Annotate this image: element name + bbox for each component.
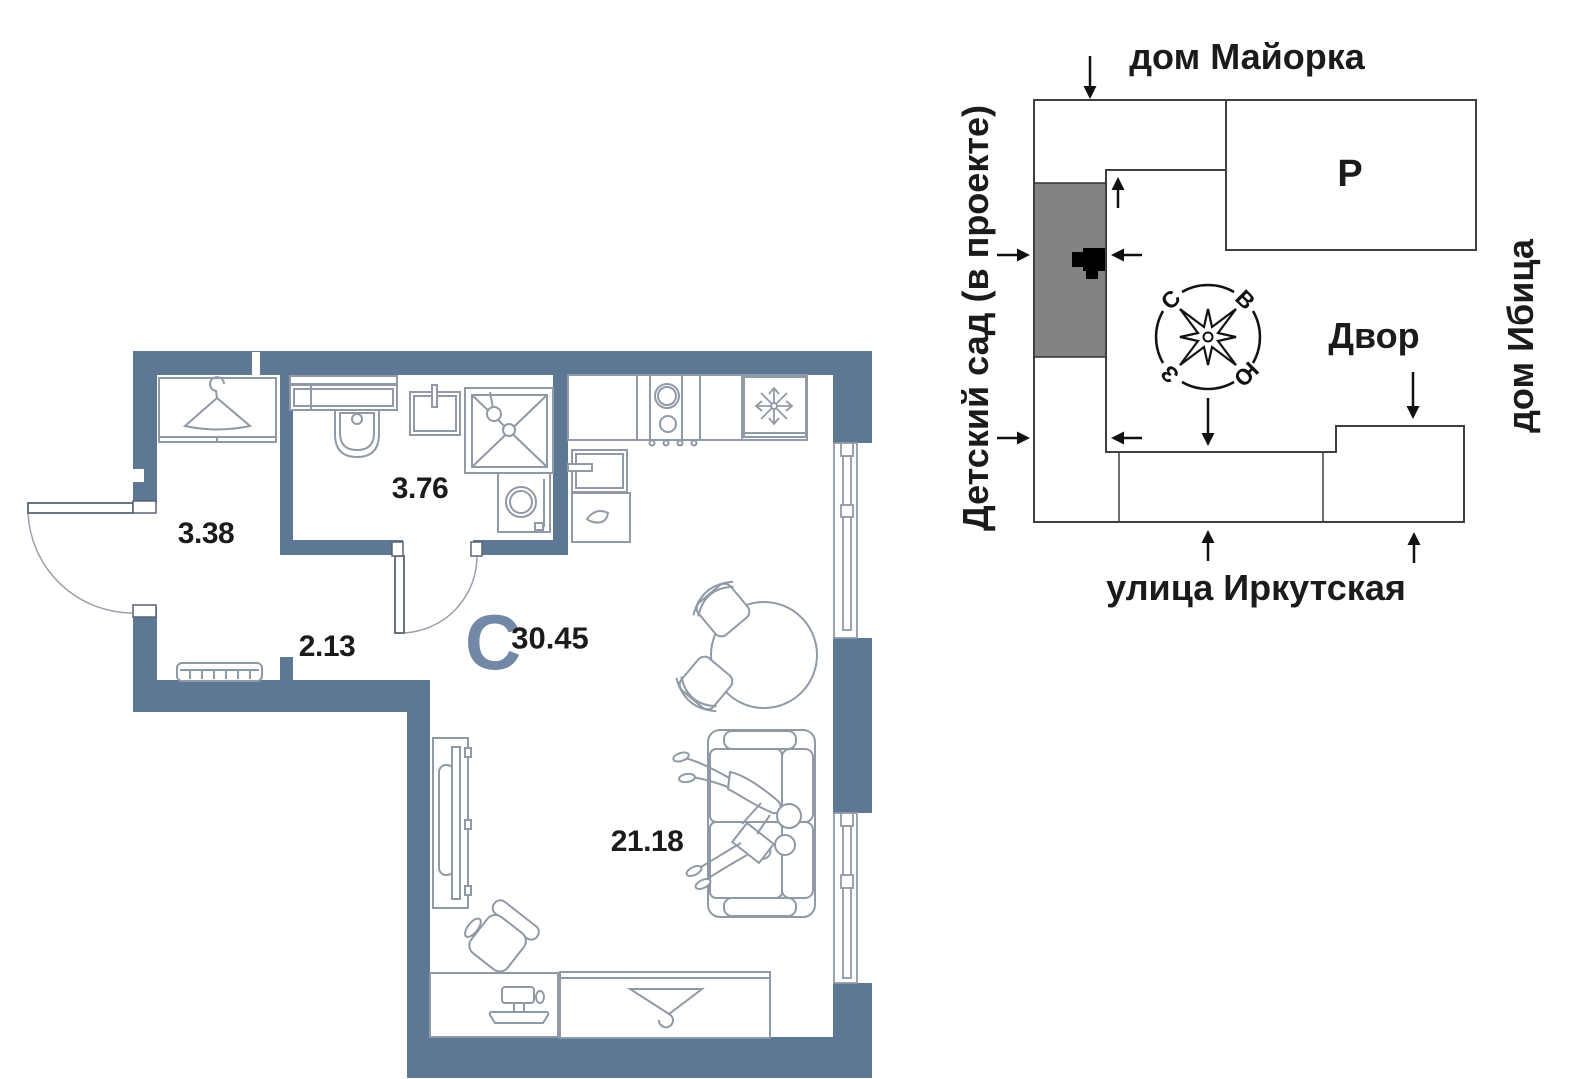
wall-left-upper	[133, 375, 157, 503]
arrow-up-icon	[1202, 530, 1215, 561]
door-jamb-left	[392, 542, 403, 556]
corridor-area-label: 2.13	[299, 632, 355, 662]
arrow-right-icon	[997, 249, 1030, 262]
parking-label: Р	[1337, 155, 1362, 193]
kitchen-sink-icon	[568, 450, 627, 492]
living-kitchen-area-label: 21.18	[611, 827, 684, 857]
wall-living-left	[407, 712, 430, 1037]
compass-center	[1204, 333, 1213, 342]
window-2	[834, 813, 857, 983]
entrance-door	[28, 501, 156, 617]
vanity	[290, 385, 397, 410]
site-label-top: дом Майорка	[1129, 39, 1365, 75]
wall-pilaster	[280, 657, 293, 680]
door-jamb-top	[133, 501, 156, 513]
wall-bathroom-right	[553, 375, 568, 555]
desk	[430, 973, 558, 1037]
arrow-up-icon	[1112, 177, 1125, 208]
door-swing-arc	[28, 513, 133, 613]
wall-top	[133, 351, 872, 375]
tv-console	[433, 738, 471, 908]
floorplan-page: 3.38 3.76 2.13 21.18 С 30.45 дом Майорка…	[0, 0, 1576, 1079]
monitor-icon	[490, 1012, 549, 1023]
hallway-area-label: 3.38	[178, 519, 234, 549]
site-label-right: дом Ибица	[1503, 239, 1539, 433]
total-area-label: 30.45	[511, 623, 589, 654]
door-leaf	[395, 556, 404, 633]
wall-hallway-bottom	[133, 680, 430, 712]
bathroom-area-label: 3.76	[392, 474, 448, 504]
arrow-right-icon	[997, 432, 1030, 445]
snowflake-icon	[756, 388, 792, 424]
arrow-down-icon	[1202, 398, 1215, 446]
arrow-down-icon	[1084, 56, 1097, 99]
arrow-left-icon	[1111, 432, 1142, 445]
wall-bottom	[407, 1037, 872, 1078]
wardrobe-hallway	[159, 377, 276, 442]
site-label-left: Детский сад (в проекте)	[958, 105, 994, 531]
door-leaf	[28, 503, 133, 513]
toilet-icon	[335, 410, 379, 457]
head	[777, 804, 801, 828]
wall-right-bottom-block	[833, 983, 872, 1078]
arrow-down-icon	[1407, 372, 1420, 419]
washing-machine-icon	[498, 473, 550, 532]
kitchen-cabinet	[572, 493, 630, 542]
keyboard-icon	[502, 987, 534, 1003]
wall-right-top-block	[833, 375, 872, 443]
site-label-bottom: улица Иркутская	[1106, 570, 1406, 606]
fridge-icon	[744, 377, 806, 437]
wardrobe-living	[560, 972, 770, 1038]
floor-plan	[28, 351, 872, 1078]
wall-notch	[133, 469, 144, 482]
window-1	[834, 443, 857, 638]
monitor-stand	[514, 1003, 524, 1012]
washbasin-icon	[410, 385, 460, 435]
wall-bathroom-bottom-left	[280, 540, 403, 555]
arrow-up-icon	[1408, 532, 1421, 563]
courtyard-label: Двор	[1328, 318, 1419, 354]
wall-right-pier	[833, 638, 872, 813]
radiator-icon	[177, 663, 262, 681]
bathroom-fixtures	[290, 376, 553, 532]
arrow-left-icon	[1111, 249, 1142, 262]
kitchen	[568, 375, 807, 542]
door-jamb-bottom	[133, 605, 156, 617]
shower-icon	[465, 388, 553, 473]
door-jamb-right	[471, 542, 482, 556]
wall-seam	[252, 352, 260, 375]
mouse-icon	[536, 991, 544, 1003]
shelf	[290, 376, 397, 384]
office-chair-icon	[457, 893, 542, 978]
